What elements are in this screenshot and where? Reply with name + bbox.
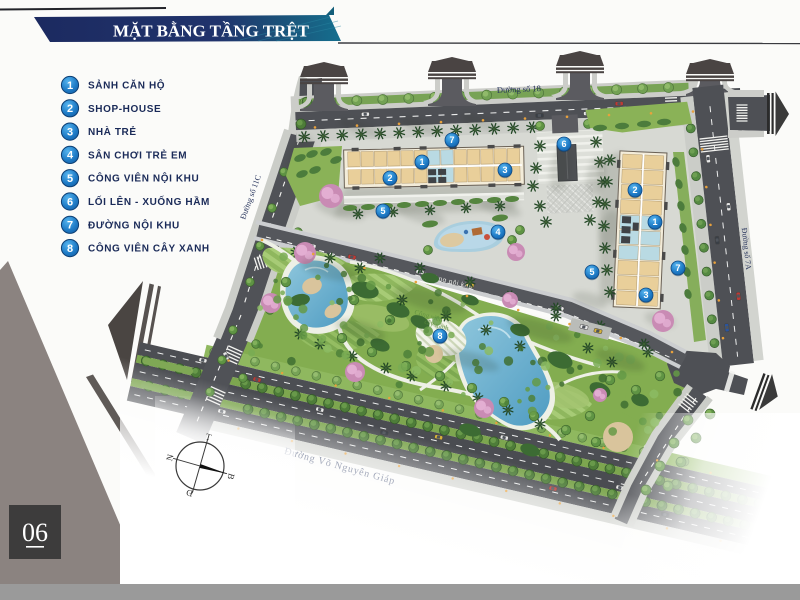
svg-text:MẶT BẰNG TẦNG TRỆT: MẶT BẰNG TẦNG TRỆT [113, 22, 310, 41]
svg-text:3: 3 [643, 290, 648, 300]
svg-text:7: 7 [67, 220, 73, 232]
svg-text:3: 3 [67, 126, 73, 138]
svg-text:LỐI LÊN - XUỐNG HẦM: LỐI LÊN - XUỐNG HẦM [88, 194, 210, 208]
svg-text:6: 6 [561, 139, 566, 149]
svg-text:SẢNH CĂN HỘ: SẢNH CĂN HỘ [88, 79, 165, 92]
svg-text:SHOP-HOUSE: SHOP-HOUSE [88, 104, 161, 115]
svg-text:1: 1 [419, 157, 424, 167]
svg-text:CÔNG VIÊN NỘI KHU: CÔNG VIÊN NỘI KHU [88, 172, 199, 185]
svg-text:SÂN CHƠI TRẺ EM: SÂN CHƠI TRẺ EM [88, 148, 187, 161]
svg-text:8: 8 [67, 243, 73, 255]
svg-text:2: 2 [67, 103, 73, 115]
svg-text:7: 7 [449, 135, 454, 145]
svg-text:1: 1 [652, 217, 657, 227]
svg-text:7: 7 [675, 263, 680, 273]
svg-text:5: 5 [589, 267, 594, 277]
svg-text:6: 6 [67, 196, 73, 208]
svg-text:2: 2 [632, 185, 637, 195]
svg-text:4: 4 [495, 227, 500, 237]
svg-text:NHÀ TRẺ: NHÀ TRẺ [88, 125, 137, 138]
svg-text:ĐƯỜNG NỘI KHU: ĐƯỜNG NỘI KHU [88, 218, 180, 231]
svg-text:4: 4 [67, 150, 74, 162]
svg-text:5: 5 [67, 173, 73, 185]
svg-text:5: 5 [380, 206, 385, 216]
svg-text:2: 2 [387, 173, 392, 183]
svg-text:1: 1 [67, 80, 73, 92]
svg-text:CÔNG VIÊN CÂY XANH: CÔNG VIÊN CÂY XANH [88, 242, 210, 255]
svg-text:Đường số 18: Đường số 18 [497, 83, 541, 95]
svg-text:3: 3 [502, 165, 507, 175]
svg-text:06: 06 [22, 518, 48, 547]
